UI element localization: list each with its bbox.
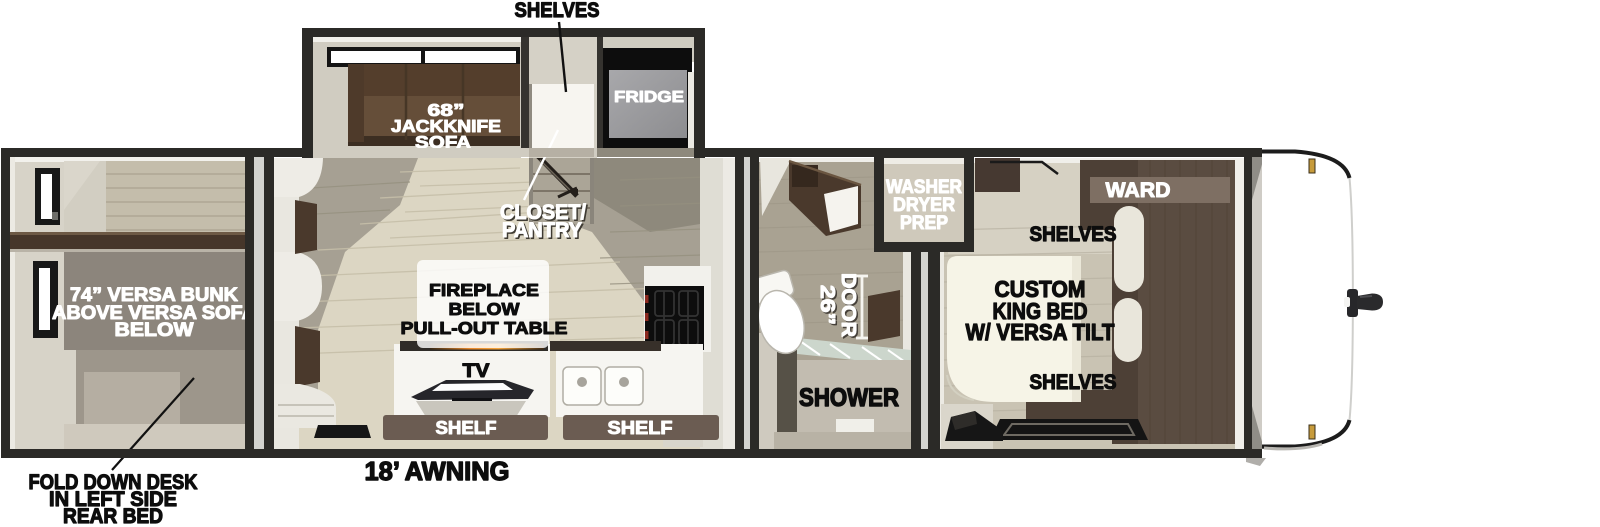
- svg-text:BELOW: BELOW: [449, 299, 521, 319]
- svg-text:DOOR: DOOR: [837, 273, 859, 338]
- svg-text:BELOW: BELOW: [115, 319, 195, 341]
- svg-text:SHELVES: SHELVES: [515, 0, 600, 22]
- svg-text:26”: 26”: [816, 285, 838, 325]
- svg-text:SHOWER: SHOWER: [799, 384, 899, 412]
- svg-text:18’ AWNING: 18’ AWNING: [365, 456, 510, 486]
- svg-text:FRIDGE: FRIDGE: [614, 89, 684, 106]
- svg-text:SHELF: SHELF: [436, 418, 497, 438]
- svg-text:PREP: PREP: [900, 212, 948, 234]
- svg-text:REAR BED: REAR BED: [63, 505, 163, 527]
- svg-text:W/ VERSA TILT: W/ VERSA TILT: [966, 319, 1115, 345]
- svg-text:TV: TV: [463, 361, 490, 382]
- svg-text:FIREPLACE: FIREPLACE: [429, 280, 539, 300]
- svg-text:SHELF: SHELF: [608, 418, 673, 438]
- svg-text:SHELVES: SHELVES: [1030, 223, 1117, 246]
- svg-text:PULL-OUT TABLE: PULL-OUT TABLE: [401, 318, 568, 338]
- svg-text:PANTRY: PANTRY: [502, 219, 582, 242]
- svg-text:WARD: WARD: [1106, 179, 1171, 202]
- svg-text:SHELVES: SHELVES: [1030, 371, 1117, 394]
